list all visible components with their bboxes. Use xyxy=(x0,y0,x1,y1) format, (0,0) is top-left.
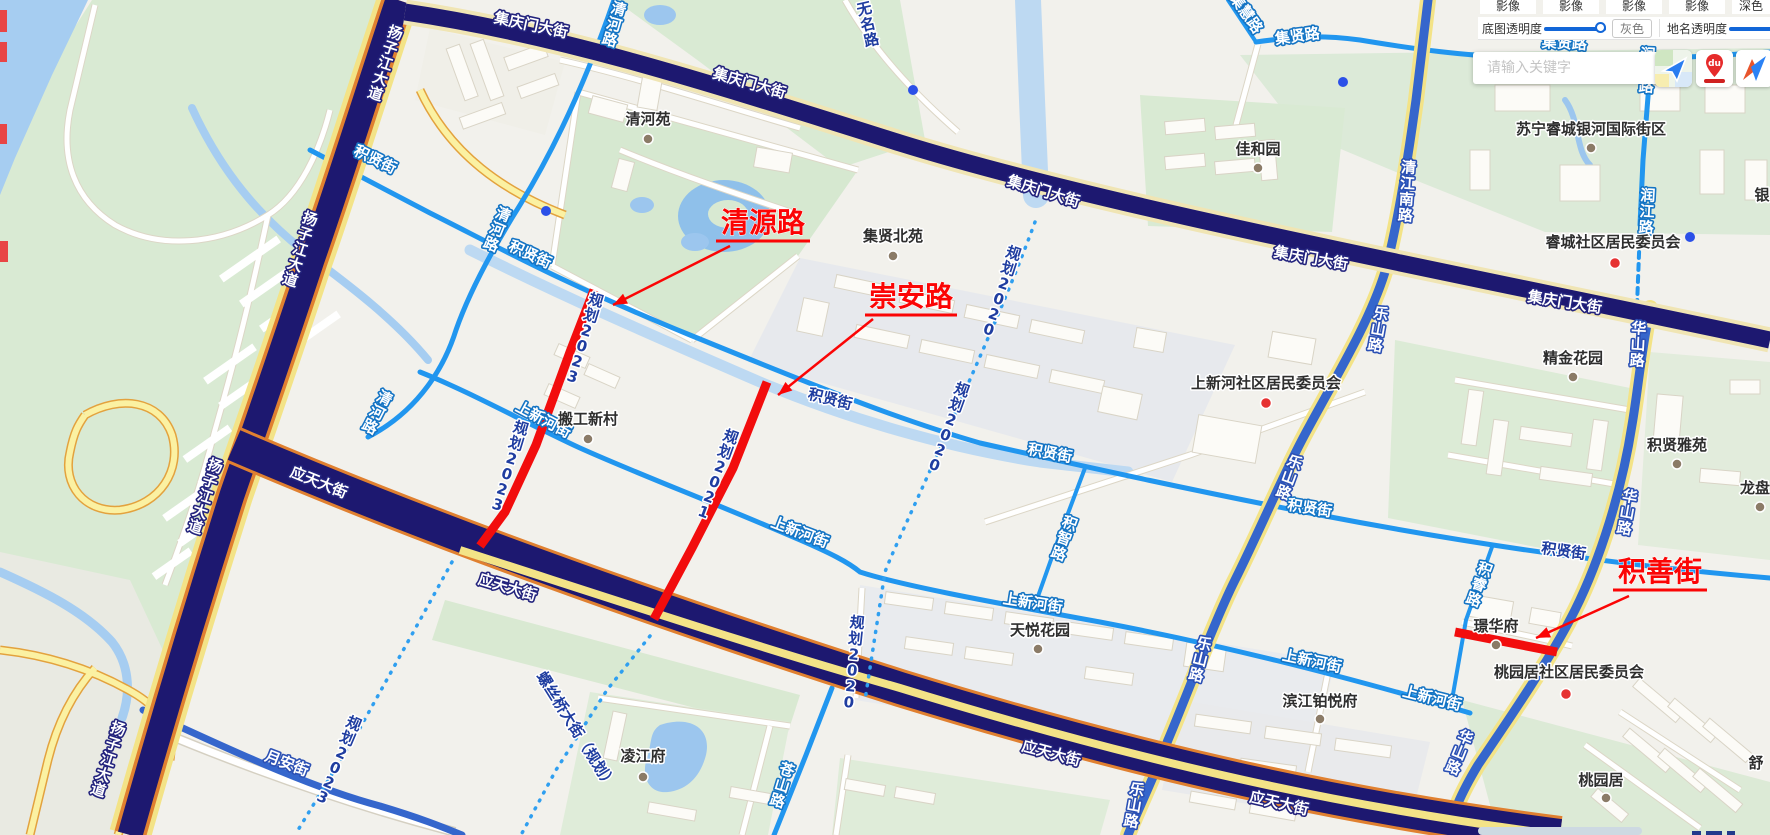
edge-red-mark xyxy=(0,124,7,144)
edge-red-mark xyxy=(0,10,7,32)
bottom-edge-fragment xyxy=(1478,827,1642,835)
place-label: 璟华府 xyxy=(1473,617,1518,635)
tab-imagery-1[interactable]: 影像 xyxy=(1480,0,1536,14)
tab-imagery-3[interactable]: 影像 xyxy=(1606,0,1662,14)
place-label: 上新河社区居民委员会 xyxy=(1191,374,1341,392)
place-label: 佳和园 xyxy=(1235,140,1280,158)
divider xyxy=(1659,19,1660,37)
poi-dot-blue xyxy=(908,85,918,95)
place-label: 滨江铂悦府 xyxy=(1282,692,1357,710)
svg-text:路: 路 xyxy=(1629,351,1646,370)
poi-dot xyxy=(1755,502,1765,512)
place-label: 桃园居社区居民委员会 xyxy=(1494,663,1644,681)
place-label: 精金花园 xyxy=(1543,349,1603,367)
annotation-label: 清源路 xyxy=(721,206,806,239)
annotation-label: 崇安路 xyxy=(869,280,954,313)
poi-dot xyxy=(1610,258,1621,269)
baidu-maps-icon[interactable]: du xyxy=(1696,50,1733,87)
map-stage: 扬子江大道扬子江大道扬子江大道扬子江大道集庆门大街集庆门大街集庆门大街集庆门大街… xyxy=(0,0,1770,835)
poi-dot xyxy=(888,251,898,261)
poi-dot xyxy=(1601,793,1611,803)
poi-dot xyxy=(1586,143,1596,153)
name-opacity-label: 地名透明度 xyxy=(1667,20,1727,37)
place-label: 舒 xyxy=(1748,754,1763,772)
slider-handle[interactable] xyxy=(1595,22,1606,33)
place-label: 清河苑 xyxy=(625,110,670,128)
place-label: 积贤雅苑 xyxy=(1647,436,1707,454)
svg-text:du: du xyxy=(1708,59,1721,69)
name-opacity-slider[interactable] xyxy=(1729,22,1770,34)
base-opacity-label: 底图透明度 xyxy=(1482,20,1542,37)
place-label: 银 xyxy=(1754,186,1770,204)
poi-dot-blue xyxy=(1685,232,1695,242)
svg-text:0: 0 xyxy=(843,693,855,712)
amap-icon[interactable] xyxy=(1655,50,1692,87)
gray-mode-button[interactable]: 灰色 xyxy=(1612,19,1652,38)
tab-imagery-4[interactable]: 影像 xyxy=(1669,0,1725,14)
poi-dot-blue xyxy=(1338,77,1348,87)
edge-red-mark xyxy=(0,42,7,62)
place-label: 苏宁睿城银河国际街区 xyxy=(1516,120,1666,138)
edge-red-mark xyxy=(0,241,8,262)
opacity-control-bar: 底图透明度 灰色 地名透明度 xyxy=(1478,17,1770,40)
poi-dot xyxy=(1491,640,1501,650)
poi-dot xyxy=(1033,644,1043,654)
tab-dark-style[interactable]: 深色 xyxy=(1732,0,1770,14)
place-label: 桃园居 xyxy=(1578,771,1623,789)
poi-dot xyxy=(1672,459,1682,469)
tencent-maps-icon[interactable] xyxy=(1736,50,1770,87)
base-opacity-slider[interactable] xyxy=(1544,22,1606,34)
annotation-label: 积善街 xyxy=(1618,555,1702,588)
poi-dot xyxy=(1561,689,1572,700)
poi-dot xyxy=(643,134,653,144)
poi-dot xyxy=(638,772,648,782)
search-input[interactable] xyxy=(1473,52,1659,84)
poi-dot-blue xyxy=(541,206,551,216)
poi-dot xyxy=(1253,163,1263,173)
place-label: 龙盘 xyxy=(1739,479,1770,497)
place-label: 凌江府 xyxy=(620,747,665,765)
poi-dot xyxy=(1568,372,1578,382)
poi-dot xyxy=(1261,398,1272,409)
poi-dot xyxy=(583,434,593,444)
place-label: 集贤北苑 xyxy=(862,227,923,245)
place-label: 搬工新村 xyxy=(558,410,618,428)
place-label: 天悦花园 xyxy=(1010,621,1070,639)
svg-text:路: 路 xyxy=(1397,206,1414,225)
poi-dot xyxy=(1315,714,1325,724)
map-search-box xyxy=(1473,52,1659,84)
place-label: 睿城社区居民委员会 xyxy=(1545,233,1680,251)
tab-imagery-2[interactable]: 影像 xyxy=(1543,0,1599,14)
map-canvas[interactable]: 扬子江大道扬子江大道扬子江大道扬子江大道集庆门大街集庆门大街集庆门大街集庆门大街… xyxy=(0,0,1770,835)
bottom-cut-fragments xyxy=(1692,831,1735,835)
